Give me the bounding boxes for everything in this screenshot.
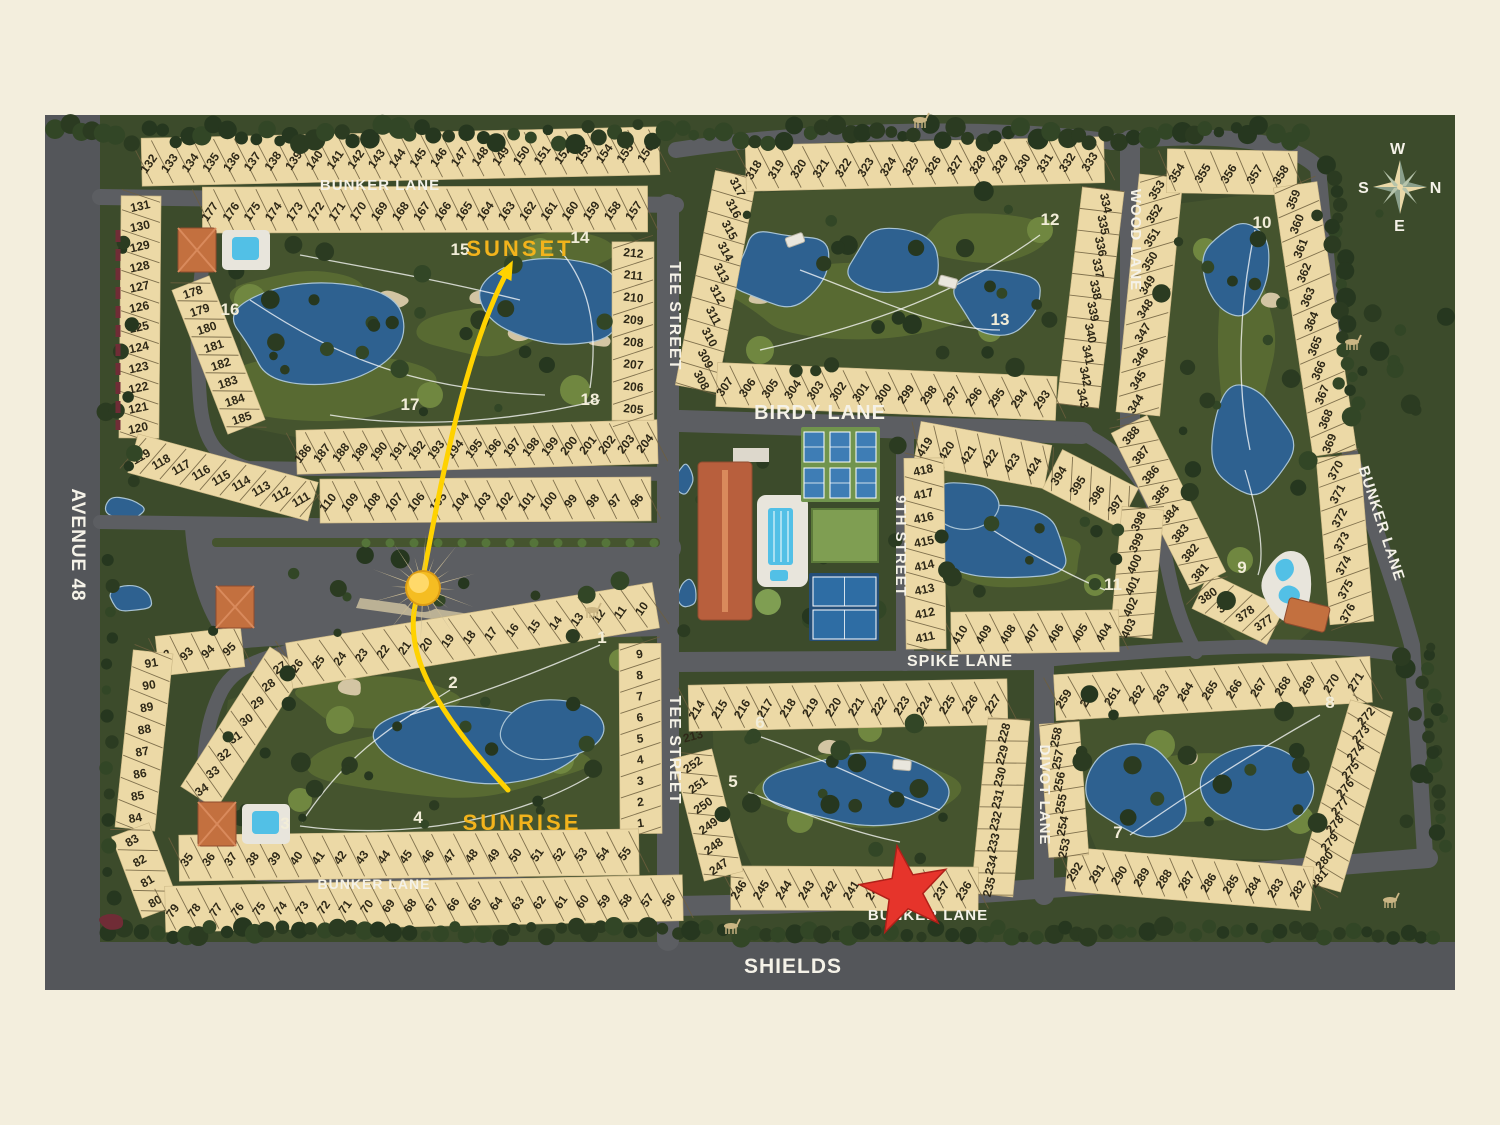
svg-text:85: 85 bbox=[130, 788, 146, 804]
svg-text:205: 205 bbox=[623, 401, 645, 417]
north-pool-building bbox=[178, 228, 270, 272]
lot-strip-a-outer-bottom: 1101091081071061051041031021011009998979… bbox=[310, 477, 661, 523]
street-label-shields: SHIELDS bbox=[744, 955, 842, 978]
hole-number-11: 11 bbox=[1104, 575, 1122, 594]
svg-text:208: 208 bbox=[623, 334, 645, 350]
lot-strip-a-outer-left: 131130129128127126125124123122121120 bbox=[119, 190, 161, 445]
lot-strip-e-top: 2142152162172182192202212222232242252262… bbox=[678, 679, 1018, 731]
street-label-bunker-lane-bottom-left: BUNKER LANE bbox=[318, 876, 431, 892]
svg-text:89: 89 bbox=[139, 699, 155, 715]
svg-text:209: 209 bbox=[623, 312, 645, 328]
lot-strip-g-inner-bottom: 3536373839404142434445464748495051525354… bbox=[169, 829, 650, 881]
hole-number-4: 4 bbox=[413, 808, 423, 827]
compass-n: N bbox=[1430, 180, 1443, 197]
svg-text:206: 206 bbox=[623, 379, 645, 395]
lot-strip-d-bottom: 410409408407406405404 bbox=[942, 610, 1129, 654]
community-map-svg: 1321331341351361371381391401411421431441… bbox=[0, 0, 1500, 1125]
lot-strip-g-inner-east: 987654321 bbox=[619, 637, 662, 840]
hole-number-7: 7 bbox=[1113, 823, 1122, 842]
hole-number-16: 16 bbox=[221, 300, 240, 319]
svg-text:87: 87 bbox=[134, 744, 150, 760]
lot-strip-e-bottom: 246245244243242241240239238237236 bbox=[721, 866, 989, 911]
street-label-tee-street-upper: TEE STREET bbox=[666, 262, 683, 371]
hole-number-5: 5 bbox=[728, 772, 737, 791]
site-map: 1321331341351361371381391401411421431441… bbox=[0, 0, 1500, 1125]
pickleball-courts bbox=[801, 427, 880, 502]
svg-text:212: 212 bbox=[623, 245, 645, 261]
svg-text:86: 86 bbox=[132, 766, 148, 782]
south-pool-building bbox=[198, 802, 290, 846]
lot-strip-d-west: 418417416415414413412411 bbox=[904, 453, 946, 654]
putting-green bbox=[755, 589, 781, 615]
svg-text:90: 90 bbox=[141, 677, 157, 693]
tennis-courts bbox=[809, 573, 879, 641]
hole-number-6: 6 bbox=[755, 713, 764, 732]
hole-number-10: 10 bbox=[1253, 213, 1272, 232]
hole-number-3: 3 bbox=[280, 814, 289, 833]
street-label-wood-lane: WOOD LANE bbox=[1127, 189, 1144, 291]
compass-e: E bbox=[1394, 218, 1406, 235]
compass-s: S bbox=[1358, 180, 1370, 197]
svg-text:91: 91 bbox=[144, 655, 160, 671]
street-label-spike-lane: SPIKE LANE bbox=[907, 653, 1013, 670]
hole-number-12: 12 bbox=[1041, 210, 1060, 229]
street-label-tee-street-lower: TEE STREET bbox=[666, 696, 683, 805]
svg-text:210: 210 bbox=[623, 290, 645, 306]
street-label-birdy-lane: BIRDY LANE bbox=[754, 402, 886, 424]
pond-bridge bbox=[893, 759, 912, 771]
street-label-ninth-street: 9TH STREET bbox=[892, 495, 909, 597]
sunrise-label: SUNRISE bbox=[463, 810, 582, 835]
sunset-label: SUNSET bbox=[466, 236, 573, 261]
svg-text:84: 84 bbox=[128, 810, 144, 826]
hole-number-8: 8 bbox=[1325, 693, 1334, 712]
hole-number-18: 18 bbox=[581, 390, 600, 409]
svg-text:88: 88 bbox=[137, 721, 153, 737]
street-label-avenue-48: AVENUE 48 bbox=[67, 488, 88, 601]
street-label-bunker-lane-top: BUNKER LANE bbox=[320, 177, 440, 194]
svg-text:211: 211 bbox=[623, 267, 644, 283]
hole-number-9: 9 bbox=[1237, 558, 1246, 577]
gatehouse bbox=[216, 586, 254, 628]
hole-number-13: 13 bbox=[991, 310, 1010, 329]
compass-w: W bbox=[1390, 141, 1406, 158]
svg-text:207: 207 bbox=[623, 356, 645, 372]
hole-number-1: 1 bbox=[597, 628, 606, 647]
lawn-bowling-green bbox=[812, 509, 878, 562]
hole-number-2: 2 bbox=[448, 673, 457, 692]
lot-strip-a-inner-right: 212211210209208207206205 bbox=[612, 235, 654, 426]
hole-number-17: 17 bbox=[401, 395, 420, 414]
street-label-divot-lane: DIVOT LANE bbox=[1036, 745, 1053, 846]
